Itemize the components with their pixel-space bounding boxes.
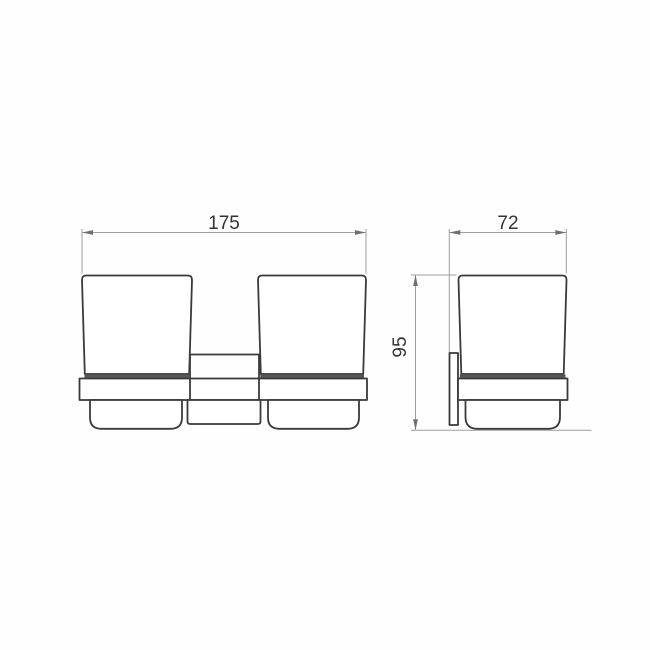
arrowhead-left (449, 230, 460, 235)
side-view: 72 95 (390, 213, 592, 430)
center-wall-plate (190, 355, 259, 379)
side-cup (459, 276, 567, 375)
arrowhead-right (355, 230, 366, 235)
front-width-label: 175 (208, 213, 240, 234)
side-holder-ring (466, 400, 561, 429)
side-depth-label: 72 (497, 213, 518, 234)
front-view: 175 (80, 213, 368, 429)
right-cup (258, 276, 366, 375)
left-holder-ring (90, 400, 182, 429)
side-height-label: 95 (390, 336, 411, 357)
left-cup (82, 276, 192, 375)
side-holder-band (458, 379, 568, 401)
dimension-drawing: 175 (0, 0, 650, 650)
front-width-dimension: 175 (82, 213, 366, 274)
technical-drawing-page: 175 (0, 0, 650, 650)
right-holder-ring (268, 400, 359, 429)
center-bracket-lower (188, 400, 261, 424)
wall-plate (450, 353, 459, 425)
holder-band (80, 379, 368, 401)
arrowhead-left (82, 230, 93, 235)
arrowhead-right (555, 230, 566, 235)
arrowhead-top (413, 275, 418, 286)
arrowhead-bottom (413, 419, 418, 430)
